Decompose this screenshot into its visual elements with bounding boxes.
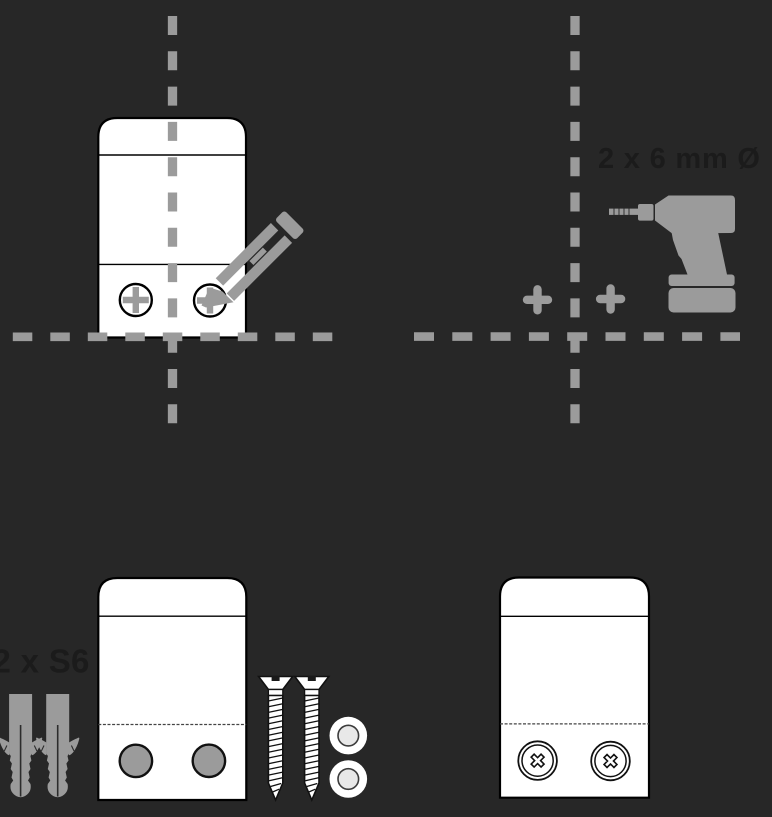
svg-text:2 x S6: 2 x S6 (0, 643, 90, 680)
svg-text:2 x 6 mm Ø: 2 x 6 mm Ø (598, 143, 761, 175)
